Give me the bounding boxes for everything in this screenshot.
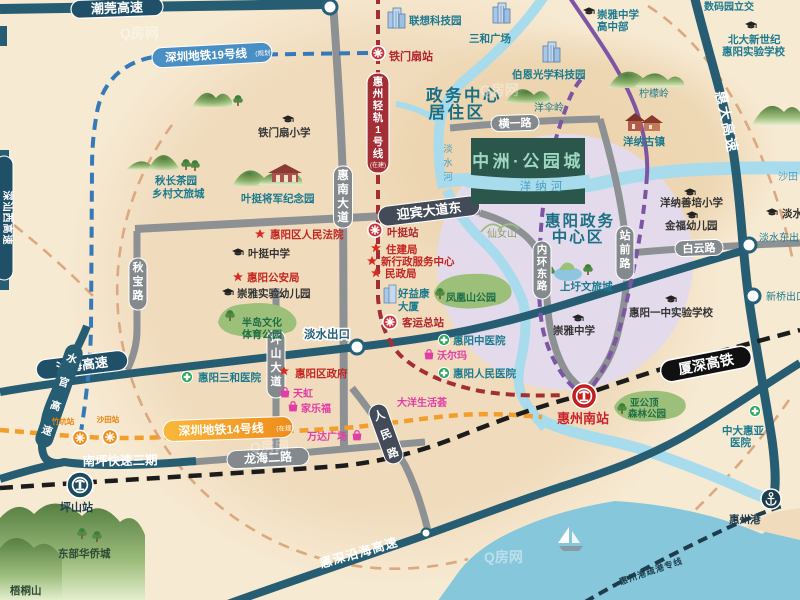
svg-text:轻: 轻 <box>373 99 384 112</box>
svg-text:淡: 淡 <box>443 144 453 155</box>
svg-text:柠檬岭: 柠檬岭 <box>639 87 669 100</box>
svg-text:伯恩光学科技园: 伯恩光学科技园 <box>512 68 586 81</box>
svg-text:凤凰山公园: 凤凰山公园 <box>446 291 496 304</box>
svg-text:数码园立交: 数码园立交 <box>704 0 754 13</box>
svg-text:前: 前 <box>620 242 631 256</box>
svg-text:医院: 医院 <box>730 436 751 449</box>
svg-text:亚公顶: 亚公顶 <box>630 398 659 409</box>
svg-text:道: 道 <box>337 210 349 224</box>
svg-text:万达广场: 万达广场 <box>306 430 347 443</box>
svg-text:联想科技园: 联想科技园 <box>409 14 462 27</box>
svg-text:乡村文旅城: 乡村文旅城 <box>152 187 205 200</box>
svg-text:深圳地铁14号线: 深圳地铁14号线 <box>178 420 264 438</box>
svg-text:淡水: 淡水 <box>782 207 800 220</box>
svg-text:惠阳政务: 惠阳政务 <box>545 211 615 230</box>
svg-text:新桥出口: 新桥出口 <box>766 290 800 303</box>
svg-text:路: 路 <box>537 279 548 292</box>
svg-text:崇雅实验幼儿园: 崇雅实验幼儿园 <box>237 287 311 300</box>
svg-text:潮莞高速: 潮莞高速 <box>91 0 144 16</box>
svg-text:坪山站: 坪山站 <box>60 500 93 514</box>
svg-text:三和广场: 三和广场 <box>469 32 511 45</box>
svg-text:1: 1 <box>375 124 381 136</box>
svg-text:家乐福: 家乐福 <box>301 402 331 415</box>
svg-text:上圩文旅城: 上圩文旅城 <box>560 280 613 293</box>
svg-text:惠阳三和医院: 惠阳三和医院 <box>198 371 261 384</box>
svg-text:水: 水 <box>443 157 453 169</box>
svg-text:号: 号 <box>373 136 384 148</box>
svg-text:惠阳一中实验学校: 惠阳一中实验学校 <box>629 306 713 319</box>
svg-text:洋伞岭: 洋伞岭 <box>534 101 564 114</box>
svg-text:横一路: 横一路 <box>498 115 532 130</box>
svg-text:惠州港: 惠州港 <box>729 513 761 526</box>
svg-text:惠阳区人民法院: 惠阳区人民法院 <box>270 228 344 241</box>
svg-text:大洋生活荟: 大洋生活荟 <box>397 396 448 409</box>
svg-text:Q房网: Q房网 <box>484 549 523 565</box>
svg-text:住建局: 住建局 <box>386 243 418 256</box>
svg-text:沙田站: 沙田站 <box>97 414 120 424</box>
svg-text:环: 环 <box>537 256 548 268</box>
svg-text:仙女山: 仙女山 <box>487 227 517 240</box>
svg-text:叶挺将军纪念园: 叶挺将军纪念园 <box>241 192 315 205</box>
svg-text:惠阳公安局: 惠阳公安局 <box>247 271 300 284</box>
svg-text:轨: 轨 <box>373 111 384 124</box>
svg-text:崇雅中学: 崇雅中学 <box>597 8 639 21</box>
svg-text:秋: 秋 <box>133 260 145 274</box>
svg-text:深汕西高速: 深汕西高速 <box>1 191 14 246</box>
svg-text:惠: 惠 <box>373 75 384 88</box>
svg-text:Q房网: Q房网 <box>250 439 289 455</box>
svg-text:线: 线 <box>373 147 384 160</box>
svg-text:客运总站: 客运总站 <box>401 316 444 329</box>
svg-text:铁门扇站: 铁门扇站 <box>389 49 433 63</box>
svg-text:金福幼儿园: 金福幼儿园 <box>664 219 718 232</box>
svg-text:崇雅中学: 崇雅中学 <box>553 324 595 337</box>
svg-text:民政局: 民政局 <box>385 267 417 280</box>
svg-text:路: 路 <box>133 288 145 302</box>
svg-text:竹坑站: 竹坑站 <box>51 416 75 426</box>
svg-text:铁门扇小学: 铁门扇小学 <box>258 126 311 139</box>
svg-text:洋纳古镇: 洋纳古镇 <box>623 135 665 148</box>
svg-text:大: 大 <box>271 360 282 374</box>
svg-text:中心区: 中心区 <box>552 227 605 246</box>
svg-text:半岛文化: 半岛文化 <box>242 316 282 329</box>
svg-text:大厦: 大厦 <box>398 300 419 313</box>
svg-text:淡水出口: 淡水出口 <box>304 327 350 341</box>
svg-text:内: 内 <box>537 243 548 256</box>
svg-text:(在建): (在建) <box>370 161 386 169</box>
svg-text:惠阳实验学校: 惠阳实验学校 <box>722 45 785 58</box>
svg-text:叶挺中学: 叶挺中学 <box>248 247 290 260</box>
svg-text:南: 南 <box>337 182 349 196</box>
svg-text:梧桐山: 梧桐山 <box>10 584 42 597</box>
svg-text:森林公园: 森林公园 <box>628 408 666 420</box>
svg-text:路: 路 <box>620 256 632 270</box>
svg-text:洋纳善培小学: 洋纳善培小学 <box>660 196 723 209</box>
svg-text:淡水东出口: 淡水东出口 <box>759 231 800 244</box>
svg-text:Q房网: Q房网 <box>120 25 159 41</box>
svg-text:河: 河 <box>443 171 453 183</box>
svg-text:站: 站 <box>620 228 631 242</box>
svg-text:白云路: 白云路 <box>682 240 716 255</box>
svg-text:州: 州 <box>372 88 384 100</box>
svg-text:南坪快速三期: 南坪快速三期 <box>82 452 157 468</box>
svg-text:Q房网: Q房网 <box>480 82 519 98</box>
svg-text:惠阳区政府: 惠阳区政府 <box>295 367 348 380</box>
svg-text:东部华侨城: 东部华侨城 <box>58 547 111 560</box>
svg-text:秋长茶园: 秋长茶园 <box>155 174 197 187</box>
svg-text:惠: 惠 <box>337 168 349 182</box>
svg-text:新行政服务中心: 新行政服务中心 <box>381 255 455 268</box>
svg-text:沙田: 沙田 <box>778 171 798 183</box>
svg-text:天虹: 天虹 <box>293 387 313 400</box>
svg-text:大: 大 <box>337 196 349 210</box>
svg-text:山: 山 <box>271 346 282 360</box>
svg-text:东: 东 <box>537 267 548 280</box>
svg-text:叶挺站: 叶挺站 <box>387 226 419 239</box>
svg-text:中大惠亚: 中大惠亚 <box>722 424 764 437</box>
svg-text:惠阳中医院: 惠阳中医院 <box>453 334 506 347</box>
svg-text:居住区: 居住区 <box>429 102 486 122</box>
svg-text:中洲·公园城: 中洲·公园城 <box>472 151 584 171</box>
svg-text:体育公园: 体育公园 <box>242 328 282 341</box>
svg-text:沃尔玛: 沃尔玛 <box>437 349 467 362</box>
svg-text:北大新世纪: 北大新世纪 <box>728 33 781 46</box>
svg-text:惠阳人民医院: 惠阳人民医院 <box>453 367 516 380</box>
svg-text:宝: 宝 <box>133 274 144 288</box>
svg-text:惠州南站: 惠州南站 <box>557 411 609 426</box>
svg-text:高中部: 高中部 <box>597 20 629 33</box>
svg-text:好益康: 好益康 <box>397 287 430 300</box>
svg-text:洋纳河: 洋纳河 <box>520 179 567 193</box>
svg-text:道: 道 <box>271 374 282 388</box>
